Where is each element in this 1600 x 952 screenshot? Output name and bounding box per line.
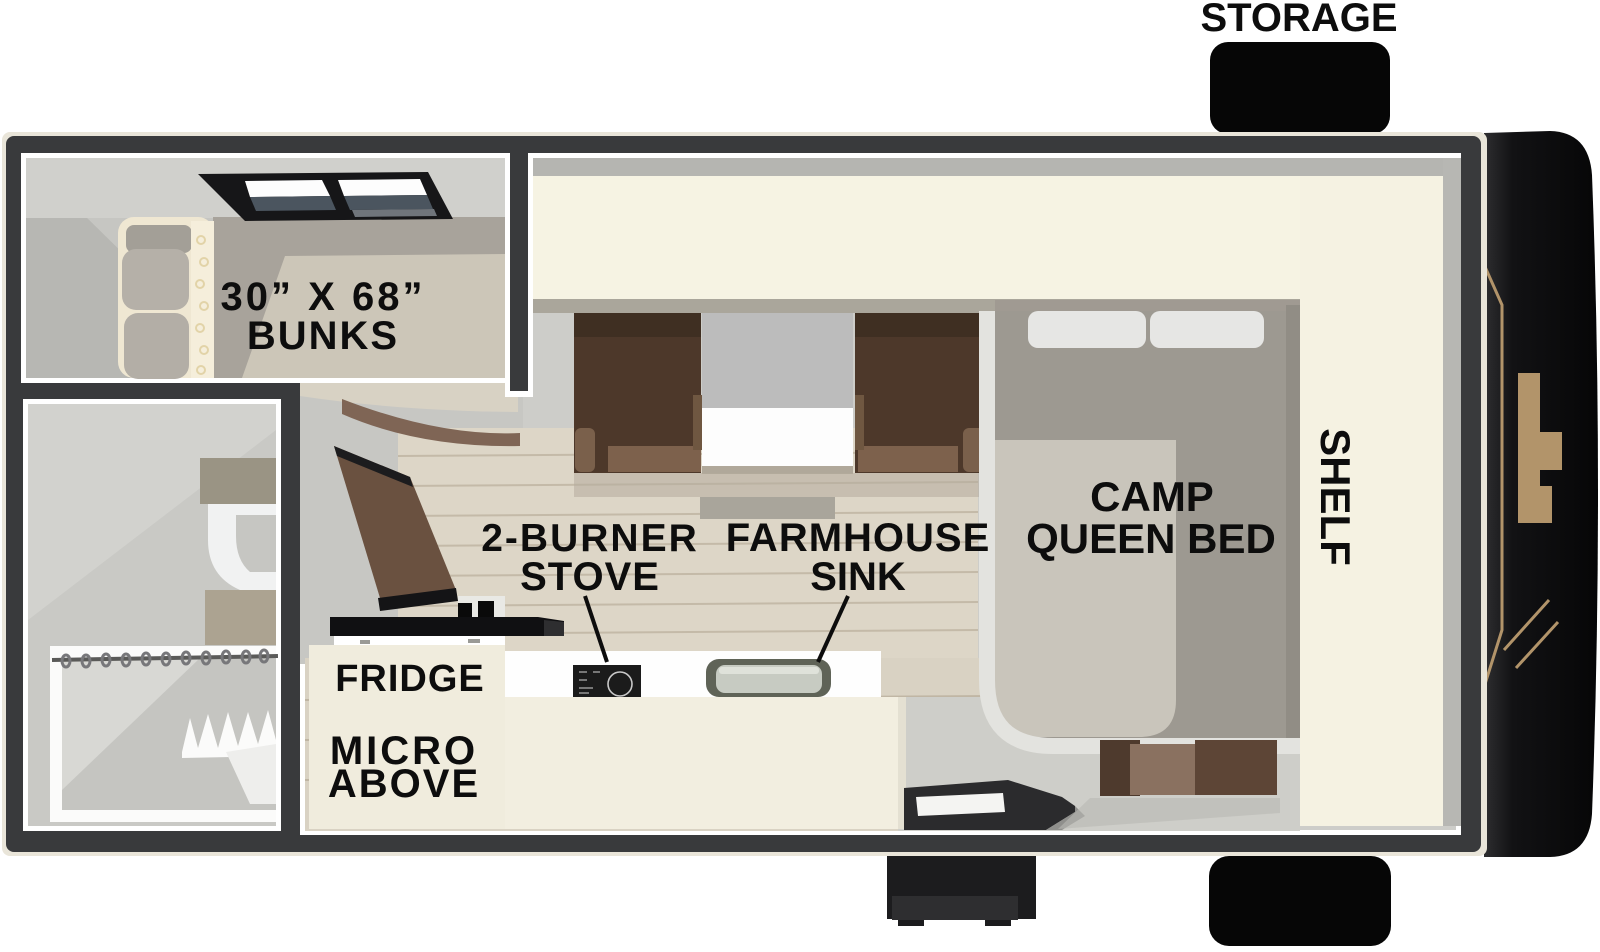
svg-text:SINK: SINK (810, 555, 906, 599)
svg-text:FRIDGE: FRIDGE (335, 658, 485, 700)
svg-text:CAMP: CAMP (1090, 473, 1214, 520)
svg-text:BUNKS: BUNKS (247, 314, 399, 358)
svg-text:STOVE: STOVE (520, 555, 660, 599)
svg-text:SHELF: SHELF (1312, 428, 1359, 566)
svg-text:2-BURNER: 2-BURNER (481, 517, 699, 560)
svg-text:STORAGE: STORAGE (1200, 0, 1397, 40)
svg-text:ABOVE: ABOVE (328, 762, 480, 806)
svg-text:30” X 68”: 30” X 68” (221, 275, 426, 319)
svg-text:QUEEN BED: QUEEN BED (1026, 515, 1276, 562)
svg-text:FARMHOUSE: FARMHOUSE (726, 516, 991, 560)
